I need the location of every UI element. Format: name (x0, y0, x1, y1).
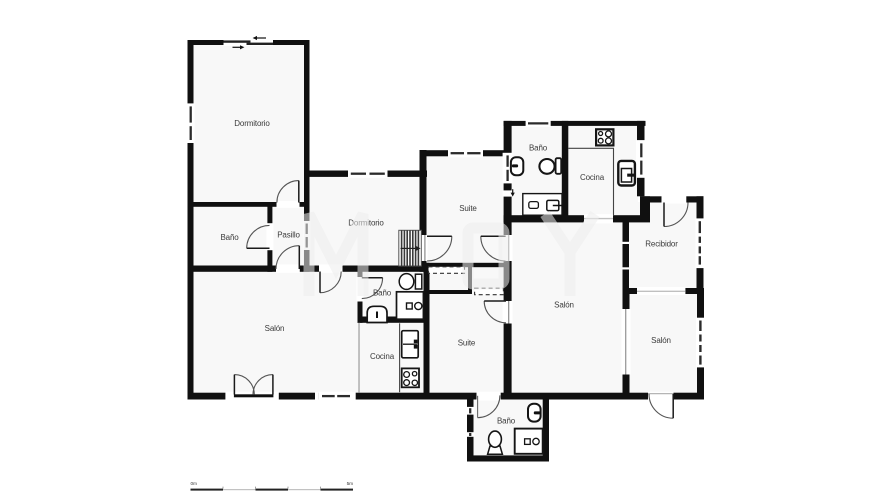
svg-text:Baño: Baño (529, 144, 548, 153)
svg-text:Salón: Salón (554, 301, 574, 310)
svg-text:Suite: Suite (458, 339, 476, 348)
svg-text:Suite: Suite (459, 204, 477, 213)
svg-text:Salón: Salón (265, 324, 285, 333)
svg-text:Baño: Baño (373, 289, 392, 298)
svg-text:Recibidor: Recibidor (645, 240, 678, 249)
svg-text:Cocina: Cocina (580, 173, 605, 182)
svg-text:Cocina: Cocina (370, 352, 395, 361)
svg-text:Baño: Baño (497, 417, 516, 426)
svg-text:Salón: Salón (651, 336, 671, 345)
svg-text:5m: 5m (347, 481, 354, 487)
svg-text:Dormitorio: Dormitorio (234, 119, 270, 128)
svg-text:Baño: Baño (220, 233, 239, 242)
svg-text:Pasillo: Pasillo (277, 231, 300, 240)
svg-text:0m: 0m (191, 481, 198, 487)
